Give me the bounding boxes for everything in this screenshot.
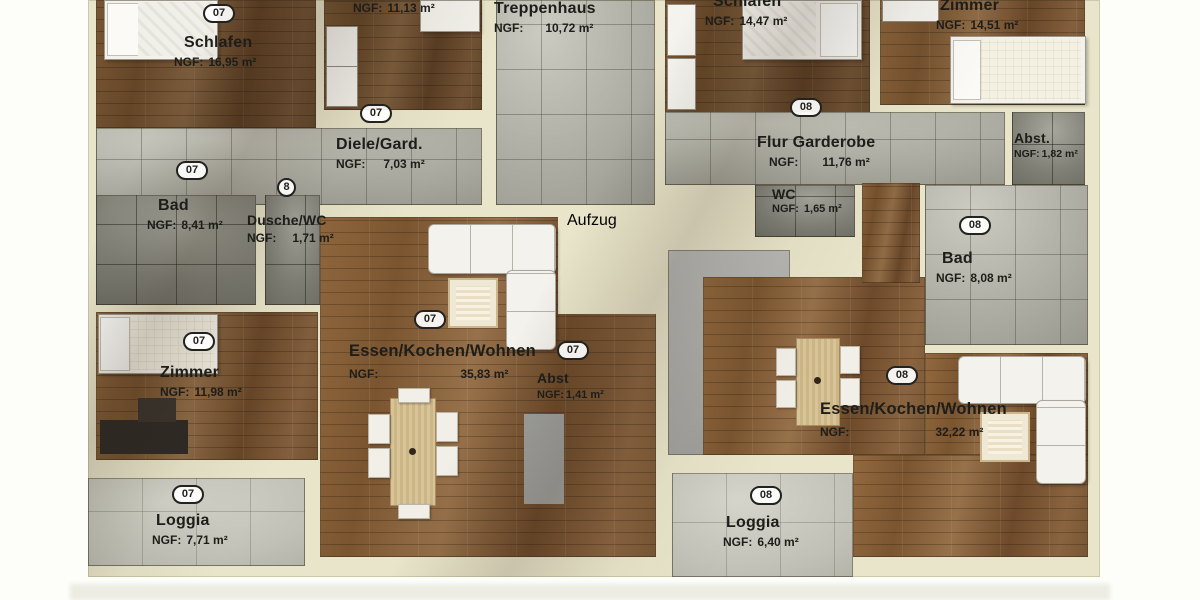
room-label-zimmer-07: Zimmer NGF:11,98 m²: [160, 364, 242, 399]
table-knob: [409, 448, 416, 455]
window-bar: [768, 460, 828, 471]
sofa-08: [958, 356, 1086, 404]
room-label-abst-08: Abst. NGF:1,82 m²: [1014, 130, 1078, 160]
unit-badge-07: 07: [203, 4, 235, 23]
sink: [1056, 162, 1082, 182]
unit-badge-07: 07: [176, 161, 208, 180]
room-label-wohnen-08: Essen/Kochen/Wohnen NGF:32,22 m²: [820, 400, 1007, 439]
room-label-schlafen-08: Schlafen NGF:14,47 m²: [713, 0, 787, 28]
unit-badge-07: 07: [183, 332, 215, 351]
chair: [398, 388, 430, 403]
room-label-schlafen-07: Schlafen NGF:16,95 m²: [184, 34, 256, 69]
bathtub: [98, 197, 138, 281]
appliance: [513, 460, 525, 474]
sofa-07: [506, 270, 556, 350]
chair: [840, 346, 860, 374]
unit-badge-07: 07: [360, 104, 392, 123]
unit-badge-08: 08: [959, 216, 991, 235]
chair: [368, 448, 390, 478]
room-label-wc-08: WC NGF:1,65 m²: [772, 186, 842, 215]
person: [574, 418, 596, 444]
chair: [776, 380, 796, 408]
kitchen-counter: [325, 236, 345, 328]
room-label-bad-07: Bad NGF:8,41 m²: [158, 197, 223, 232]
room-label-loggia-07: Loggia NGF:7,71 m²: [156, 512, 228, 547]
corridor-floor-wohnen-08: [862, 183, 920, 283]
elevator-label: Aufzug: [567, 212, 617, 229]
blanket: [981, 39, 1081, 99]
chair: [436, 412, 458, 442]
unit-badge-08: 08: [886, 366, 918, 385]
unit-badge-8: 8: [277, 178, 296, 197]
window-bar: [1086, 485, 1095, 555]
sink: [950, 314, 990, 340]
wardrobe: [326, 26, 358, 67]
wardrobe: [667, 58, 696, 110]
bed-headboard: [96, 0, 104, 62]
unit-badge-08: 08: [750, 486, 782, 505]
pillow: [100, 317, 130, 371]
appliance: [513, 478, 525, 492]
room-label-dusche-wc-07: Dusche/WC NGF:1,71 m²: [247, 212, 334, 245]
window-bar: [178, 459, 233, 469]
window-bar: [700, 460, 760, 471]
person: [698, 334, 720, 360]
wardrobe: [882, 0, 939, 22]
room-label-loggia-08: Loggia NGF:6,40 m²: [726, 514, 799, 549]
sink: [196, 262, 234, 290]
chair: [398, 504, 430, 519]
room-label-diele-07: Diele/Gard. NGF:7,03 m²: [336, 136, 425, 171]
appliance: [513, 442, 525, 456]
pillow: [953, 40, 981, 100]
window-bar: [508, 558, 616, 568]
ground-shadow: [70, 584, 1110, 600]
wardrobe: [667, 4, 696, 56]
plant: [96, 484, 138, 526]
stairs-upper: [595, 0, 655, 62]
stairs-fan: [577, 58, 655, 118]
window-bar: [1085, 0, 1095, 25]
chair: [368, 414, 390, 444]
chair: [776, 348, 796, 376]
pillow: [107, 3, 139, 56]
room-label-treppenhaus: Treppenhaus NGF:10,72 m²: [494, 0, 596, 35]
elevator: Aufzug: [567, 212, 651, 307]
floor-plan-page: Aufzug: [0, 0, 1200, 600]
wardrobe: [326, 66, 358, 107]
chair: [436, 446, 458, 476]
bathtub: [1036, 256, 1086, 342]
toilet: [1002, 310, 1030, 342]
unit-badge-07: 07: [172, 485, 204, 504]
desk: [100, 420, 188, 454]
shower: [1010, 188, 1084, 240]
room-label-flur-08: Flur Garderobe NGF:11,76 m²: [757, 134, 875, 169]
desk-chair: [138, 398, 176, 422]
room-label-zimmer-klein-07: NGF:11,13 m²: [353, 1, 435, 15]
toilet: [153, 256, 179, 292]
room-label-abst-07: Abst NGF:1,41 m²: [537, 370, 604, 401]
sofa-07: [428, 224, 556, 274]
room-label-bad-08: Bad NGF:8,08 m²: [942, 250, 1012, 285]
pillow: [820, 3, 858, 57]
unit-badge-07: 07: [414, 310, 446, 329]
table-knob: [814, 377, 821, 384]
plant: [1042, 508, 1080, 548]
appliance: [513, 424, 525, 438]
sofa-08: [1036, 400, 1086, 484]
unit-badge-08: 08: [790, 98, 822, 117]
room-label-wohnen-07: Essen/Kochen/Wohnen NGF:35,83 m²: [349, 342, 536, 381]
unit-badge-07: 07: [557, 341, 589, 360]
coffee-table: [448, 278, 498, 328]
window-bar: [1040, 558, 1084, 567]
window-bar: [338, 558, 450, 568]
plant: [870, 448, 904, 486]
room-label-zimmer-08: Zimmer NGF:14,51 m²: [940, 0, 1018, 32]
